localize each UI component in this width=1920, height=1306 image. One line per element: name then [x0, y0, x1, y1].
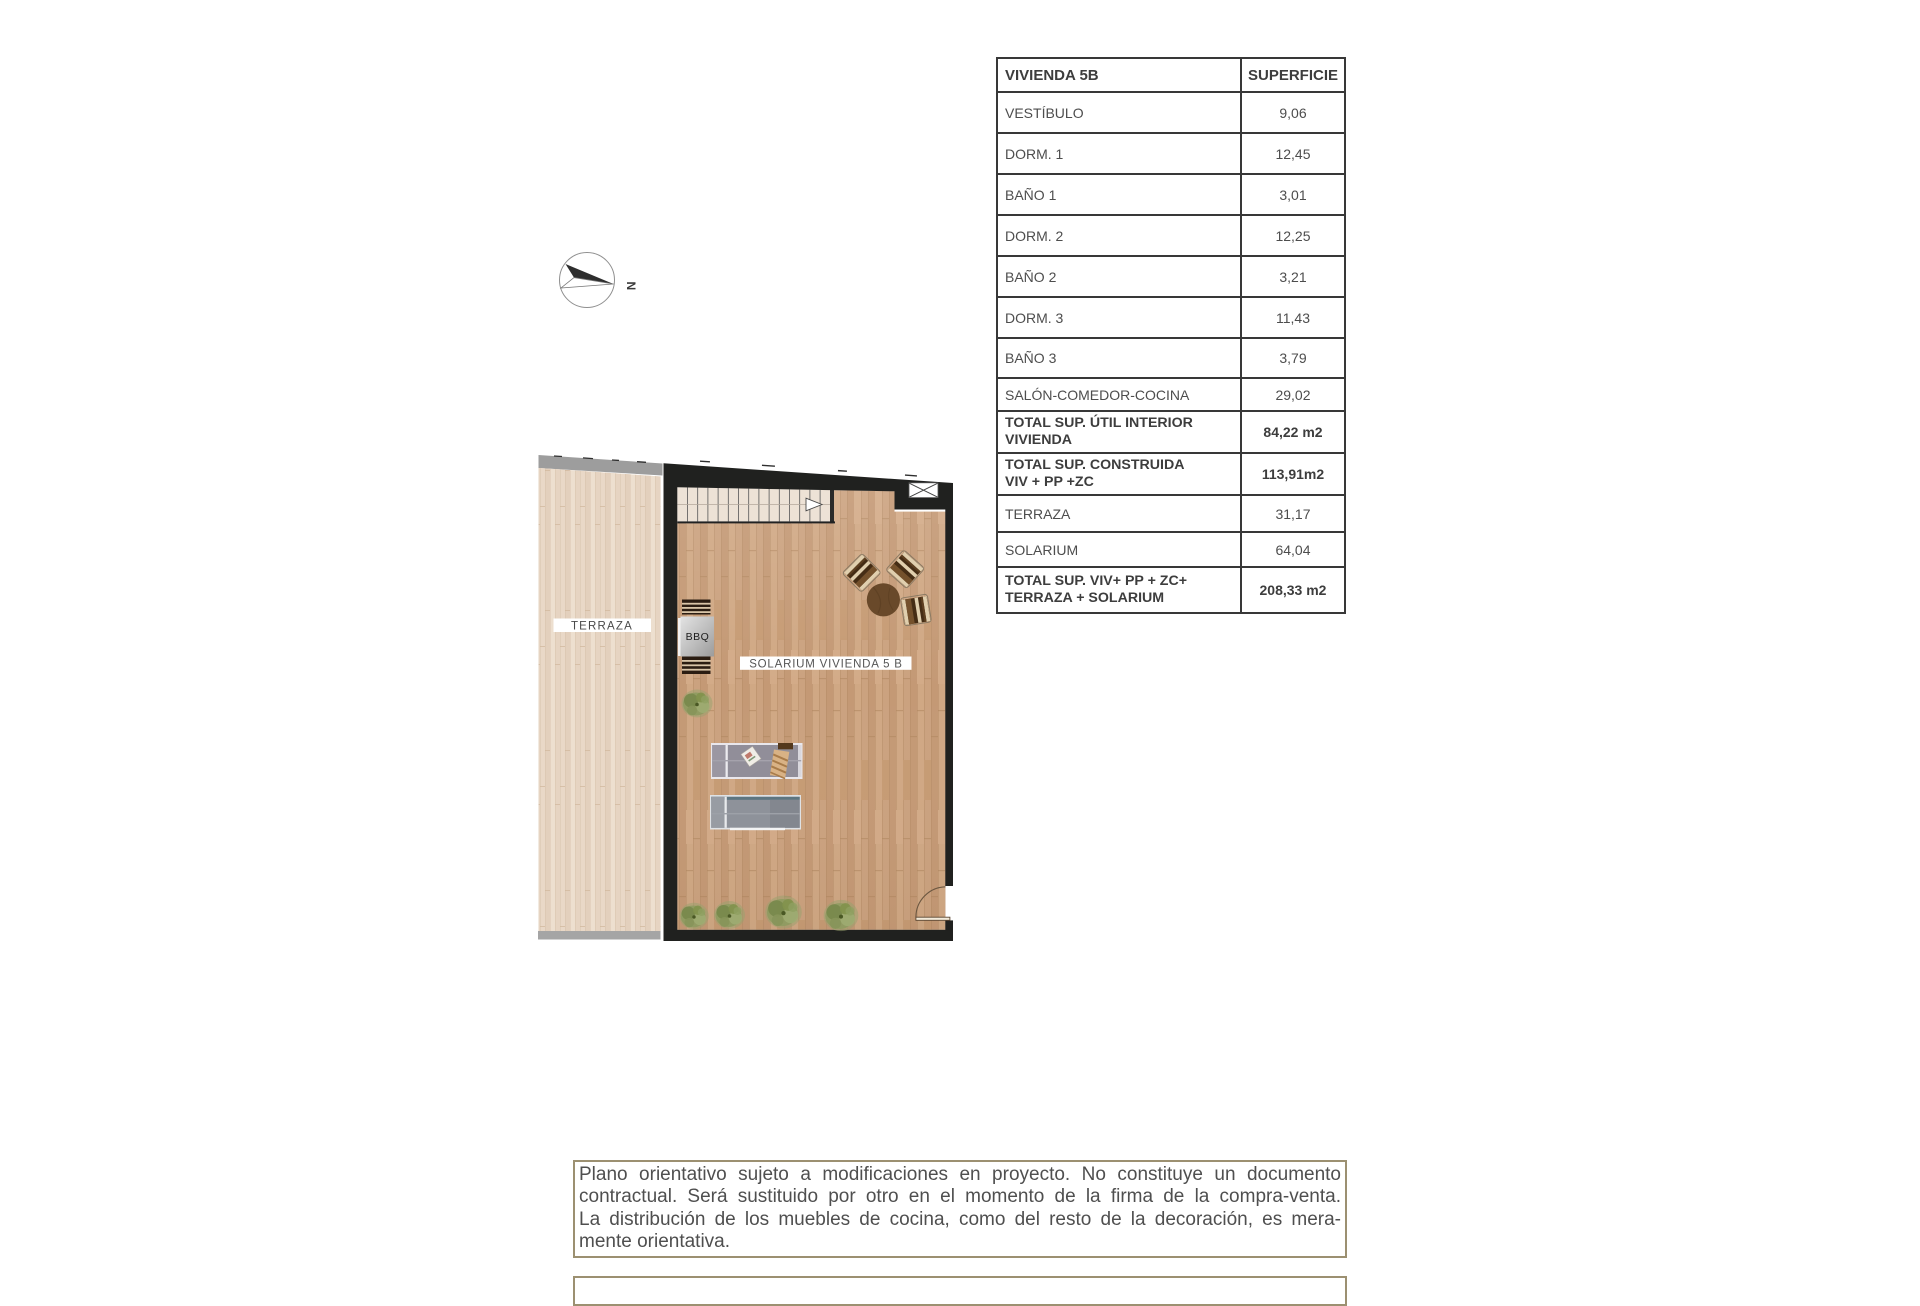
svg-text:BBQ: BBQ [686, 631, 710, 643]
svg-text:SOLARIUM VIVIENDA 5 B: SOLARIUM VIVIENDA 5 B [749, 658, 903, 670]
svg-text:N: N [624, 282, 638, 291]
svg-text:TERRAZA: TERRAZA [571, 621, 633, 633]
